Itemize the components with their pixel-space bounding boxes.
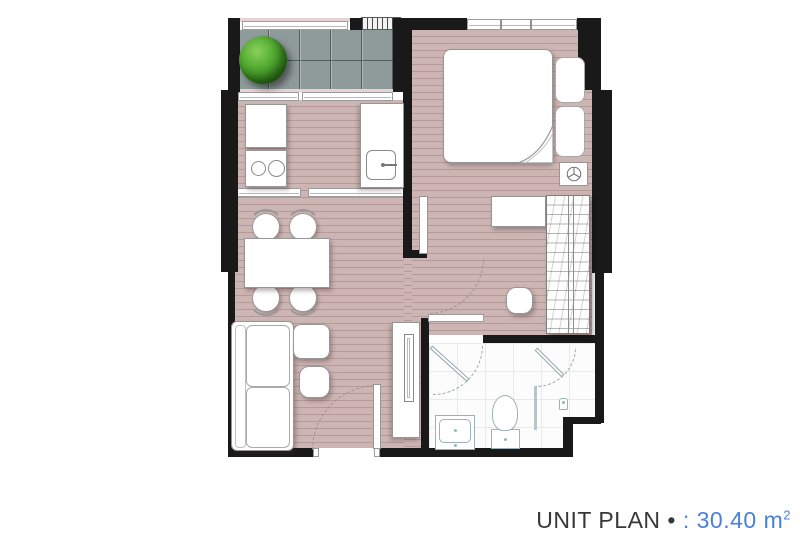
wall-bathroom-top xyxy=(483,335,601,343)
area-colon: : xyxy=(683,507,690,533)
toilet-bowl xyxy=(492,395,518,431)
entrance-door-swing xyxy=(312,385,377,450)
wall-left-upper xyxy=(221,90,238,272)
title-bullet: • xyxy=(667,507,676,533)
fridge-counter xyxy=(245,104,287,148)
bedroom-door-leaf xyxy=(419,196,428,254)
area-value: 30.40 xyxy=(697,507,757,533)
unit-area: : 30.40 m2 xyxy=(683,507,791,533)
balcony-sliding-door-right xyxy=(302,92,393,101)
dining-chair xyxy=(289,213,317,241)
bedroom-door-swing xyxy=(428,258,484,314)
kitchen-counter-rail-left xyxy=(237,188,301,197)
dining-table xyxy=(244,238,330,288)
desk xyxy=(491,196,546,227)
sofa-backrest xyxy=(235,325,246,448)
entrance-door-leaf xyxy=(373,384,381,449)
stool xyxy=(506,287,533,314)
bed-folded-corner xyxy=(516,124,554,164)
pillow xyxy=(555,57,585,103)
coffee-table xyxy=(293,324,330,359)
balcony-railing xyxy=(242,21,348,30)
vanity-drain xyxy=(454,429,457,432)
exterior-corner xyxy=(573,424,602,448)
window-mullion xyxy=(500,20,502,29)
shower-head-dot xyxy=(562,401,565,404)
balcony-sliding-door-left xyxy=(238,92,299,101)
tv xyxy=(404,334,414,402)
tv-screen-line xyxy=(407,338,410,398)
shower-partition xyxy=(534,386,537,430)
sofa-cushion xyxy=(246,387,290,448)
area-unit: m xyxy=(764,507,784,533)
sofa-cushion xyxy=(246,325,290,387)
unit-plan-title: UNIT PLAN • : 30.40 m2 xyxy=(536,507,791,534)
burner-left xyxy=(251,161,266,176)
shower-head-icon xyxy=(559,398,568,410)
area-superscript: 2 xyxy=(783,507,791,522)
vanity-dot xyxy=(454,444,457,447)
window-mullion xyxy=(530,20,532,29)
toilet-button xyxy=(504,438,507,441)
wall-top-mid xyxy=(350,18,362,30)
wall-balcony-left xyxy=(228,18,240,92)
tree-icon xyxy=(239,36,287,84)
dining-chair xyxy=(252,213,280,241)
dining-chair xyxy=(289,284,317,312)
dining-chair xyxy=(252,284,280,312)
fan-icon xyxy=(565,165,583,183)
wall-right-lower xyxy=(595,273,604,423)
burner-right xyxy=(268,160,285,177)
kitchen-counter-rail-right xyxy=(308,188,404,197)
pillow xyxy=(555,106,585,157)
floor-plan-canvas: UNIT PLAN • : 30.40 m2 xyxy=(0,0,800,549)
wall-bottom-right xyxy=(380,448,573,457)
faucet-spout xyxy=(385,164,397,166)
wall-right-mid xyxy=(592,90,612,273)
unit-plan-label: UNIT PLAN xyxy=(536,507,660,533)
wardrobe xyxy=(546,195,590,334)
wall-bedroom-left xyxy=(403,28,412,258)
bedroom-window xyxy=(467,19,577,30)
wall-bathroom-divider xyxy=(421,318,429,457)
bedroom-door-threshold xyxy=(428,314,484,322)
